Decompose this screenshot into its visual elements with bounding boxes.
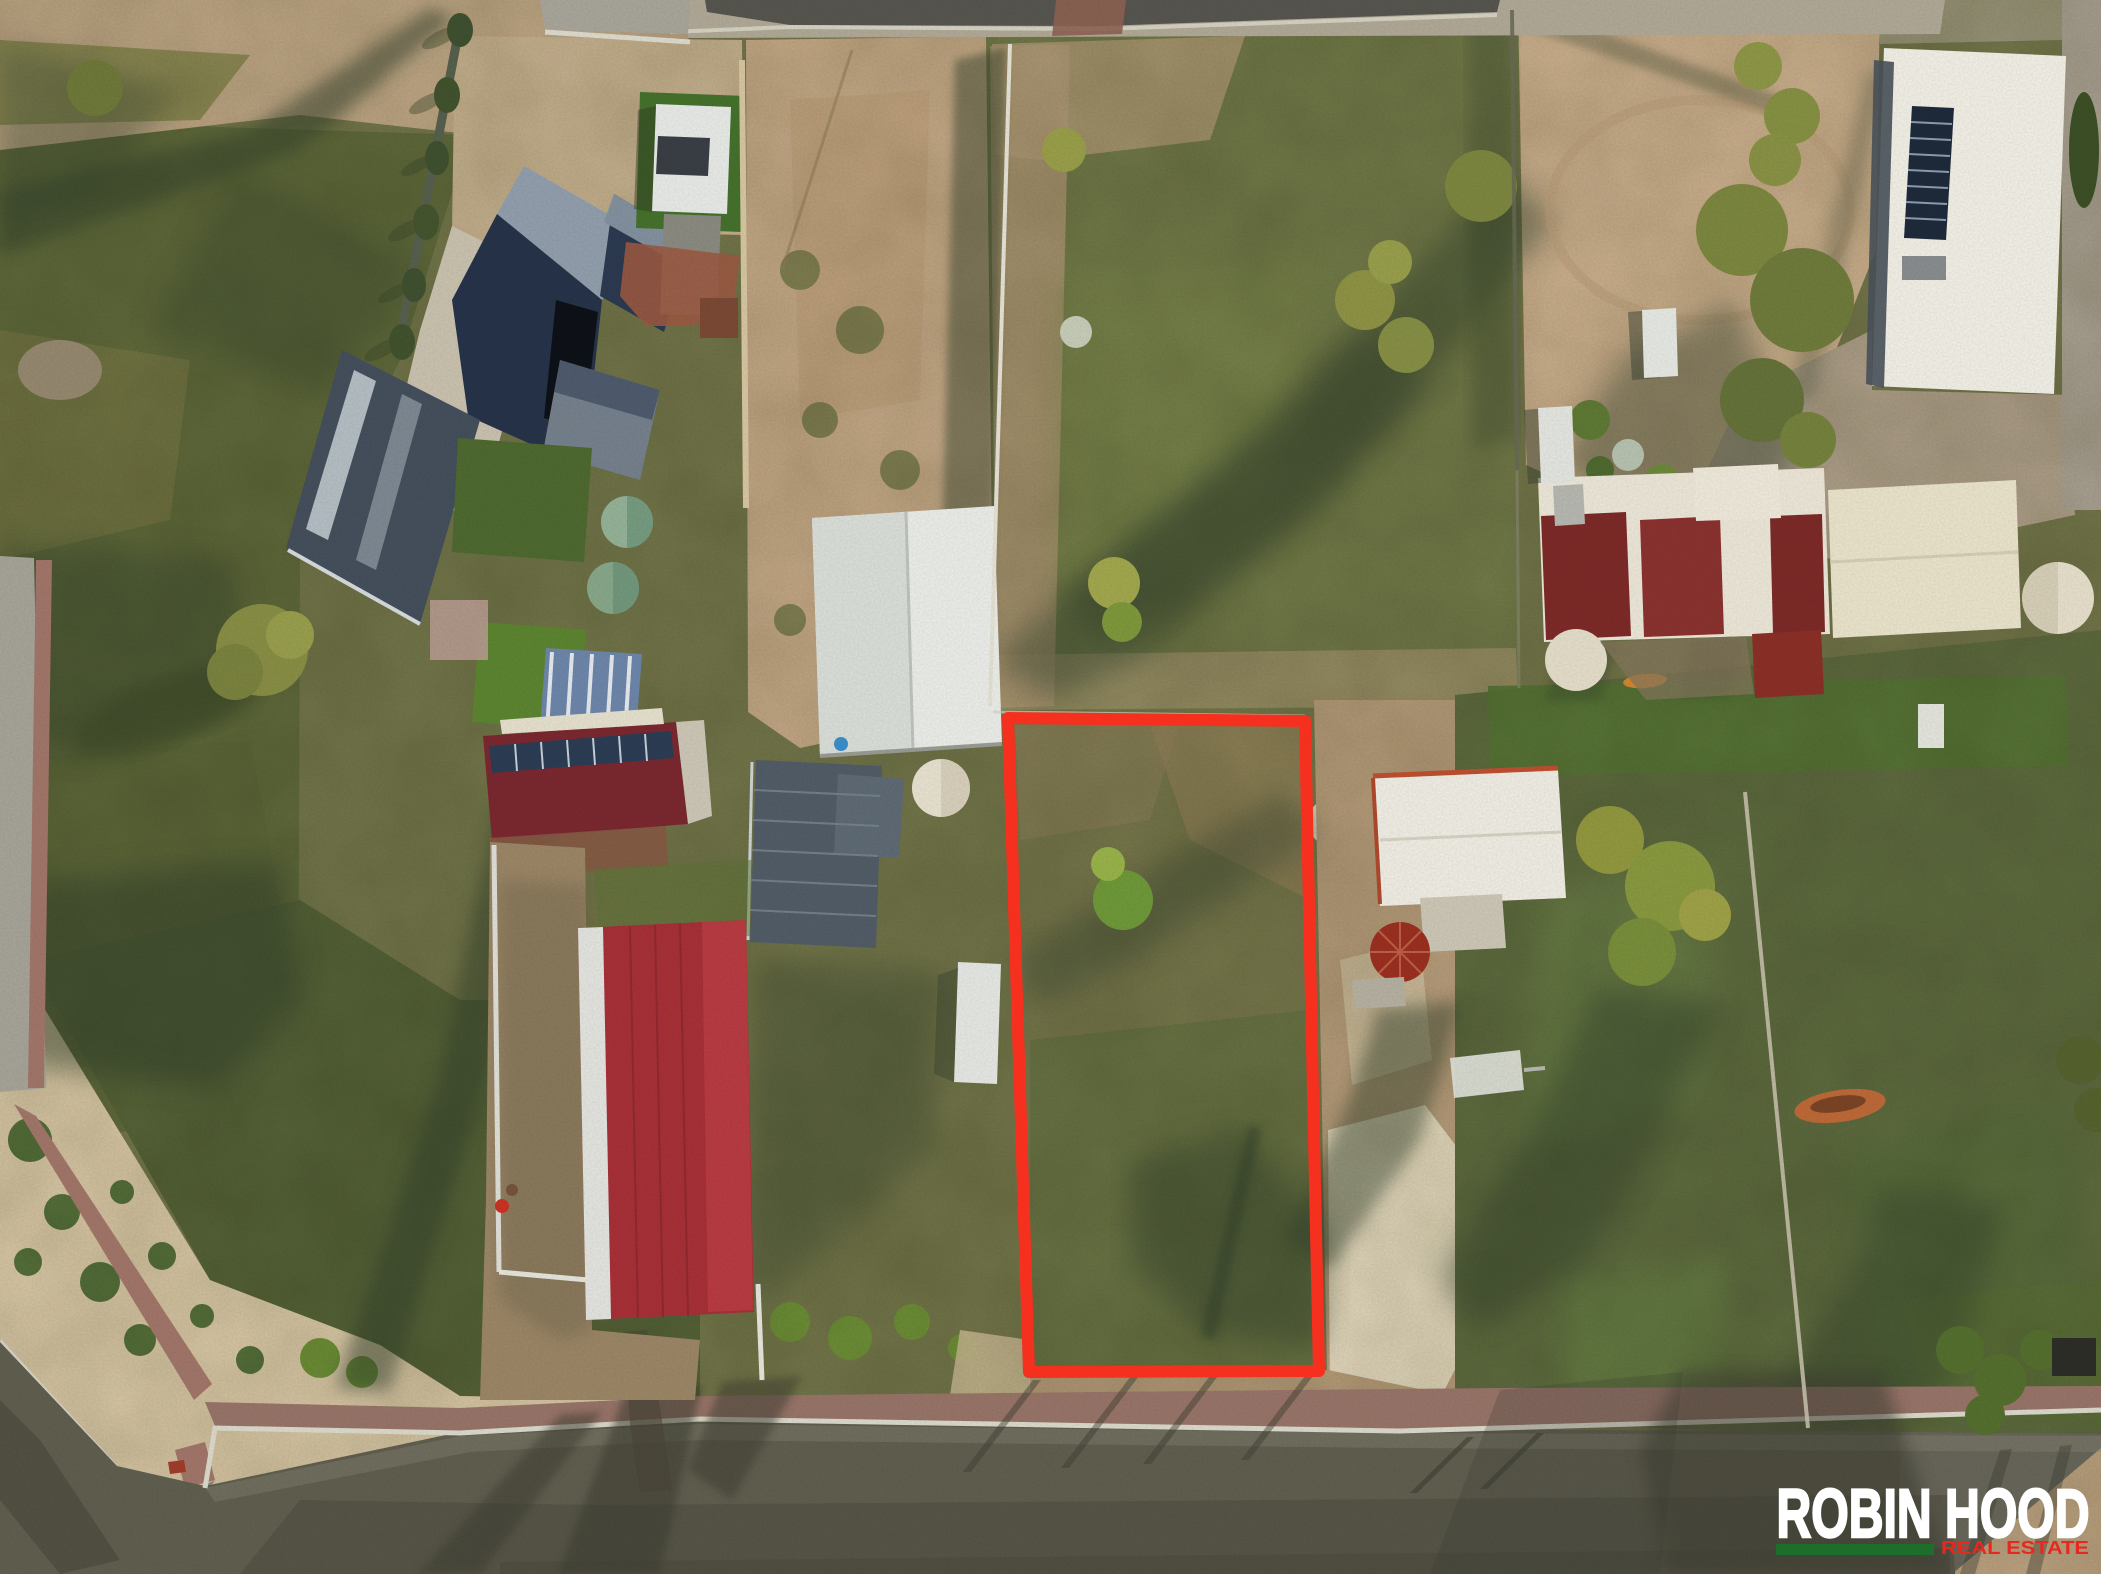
svg-text:REAL ESTATE: REAL ESTATE xyxy=(1941,1538,2089,1558)
